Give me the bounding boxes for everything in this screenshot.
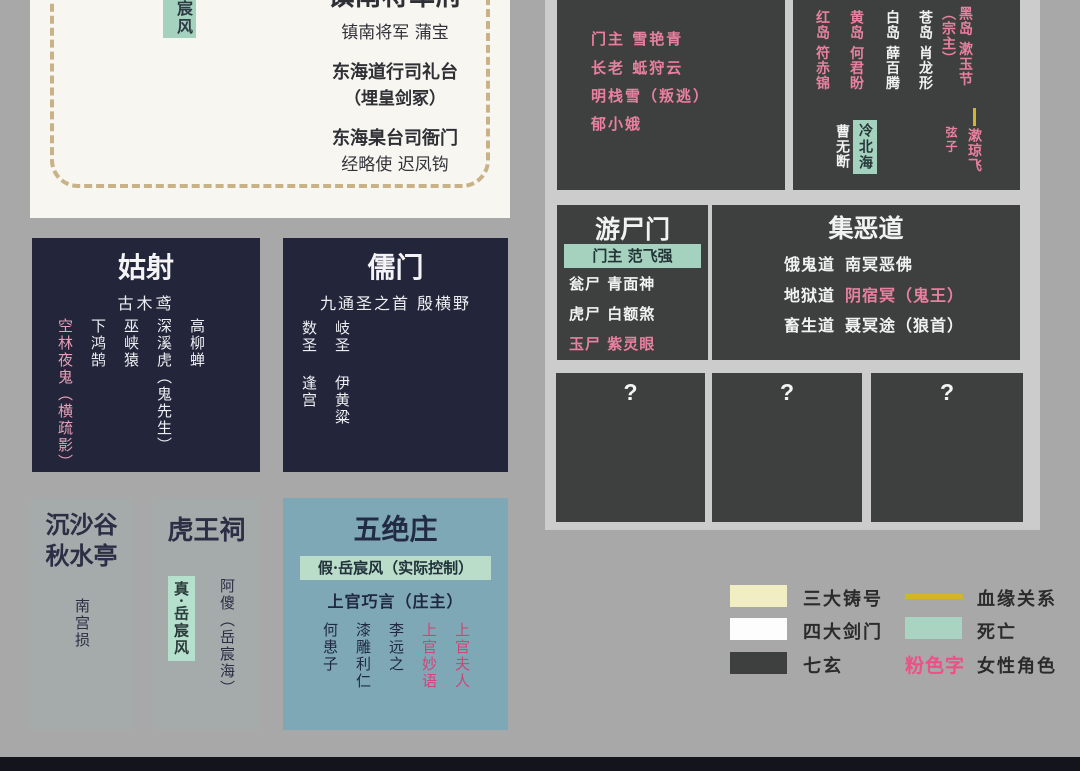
legend-label: 女性角色 (977, 652, 1057, 678)
huwang-card: 虎王祠 真·岳宸风 阿傻（岳宸海） (153, 498, 260, 730)
role-label: 饿鬼道 (784, 255, 835, 274)
wujue-title: 五绝庄 (283, 508, 508, 548)
unknown-card: ? (712, 373, 862, 522)
legend-swatch-dark (730, 652, 787, 674)
chensha-card: 沉沙谷 秋水亭 南宫损 (30, 498, 133, 730)
member-line: 虎尸 白额煞 (569, 303, 655, 324)
seven-xuan-panel: 海沙会 门主 雪艳青 长老 蚳狩云 明栈雪（叛逃） 郁小娥 红岛 符赤锦 黄岛 … (545, 0, 1040, 530)
member-line: 畜生道聂冥途（狼首） (784, 312, 964, 336)
member-name: 空林夜鬼（横疏影） (55, 318, 76, 470)
relation-label: 弦子 (943, 126, 960, 154)
five-islands-card: 红岛 符赤锦 黄岛 何君盼 白岛 薛百腾 苍岛 肖龙形 黑岛 漱玉节（宗主） 漱… (793, 0, 1020, 190)
unknown-card: ? (871, 373, 1023, 522)
member-name: 南宫损 (72, 598, 93, 649)
member-line: 瓮尸 青面神 (569, 273, 655, 294)
member-name: 阴宿冥（鬼王） (845, 286, 964, 305)
role-label: 畜生道 (784, 316, 835, 335)
ritual-office-title: 东海道行司礼台 (270, 58, 520, 84)
member-name: 曹无断 (833, 124, 850, 169)
island-column: 白岛 薛百腾 (883, 10, 900, 91)
member-name: 漆雕利仁 (353, 622, 374, 730)
legend-swatch-cream (730, 585, 787, 607)
haisha-title-clipped: 海沙会 (557, 0, 785, 2)
card-title: 镇南将军府 (270, 0, 520, 12)
legend-label: 四大剑门 (803, 618, 883, 644)
member-name: 伊黄粱 (332, 375, 353, 426)
title-line: 秋水亭 (30, 541, 133, 572)
deceased-tag-yuechenfeng: 岳宸风 (163, 0, 196, 38)
member-columns: 高柳蝉 深溪虎（鬼先生） 巫峡猿 下鸿鹄 空林夜鬼（横疏影） (76, 318, 208, 470)
jiedao-title: 集恶道 (712, 209, 1020, 245)
yamen-sub: 经略使 迟凤钩 (270, 150, 520, 175)
legend-swatch-green (905, 617, 962, 639)
deceased-leader-band: 门主 范飞强 (564, 244, 701, 268)
legend-swatch-white (730, 618, 787, 640)
legend-label: 死亡 (977, 618, 1017, 644)
member-name: 阿傻（岳宸海） (217, 578, 238, 738)
deceased-tag-true-yuechenfeng: 真·岳宸风 (168, 576, 195, 661)
member-line: 郁小娥 (591, 113, 642, 134)
rumen-title: 儒门 (283, 246, 508, 286)
member-name: 巫峡猿 (121, 318, 142, 470)
rumen-card: 儒门 九通圣之首 殷横野 岐圣 伊黄粱 数圣 逢宫 (283, 238, 508, 472)
member-line: 玉尸 紫灵眼 (569, 333, 655, 354)
ritual-office-sub: （埋皇剑冢） (270, 84, 520, 109)
role-label: 数圣 (300, 320, 318, 354)
member-line: 长老 蚳狩云 (591, 57, 683, 78)
role-label: 岐圣 (333, 320, 351, 354)
blood-relation-line (973, 108, 976, 126)
member-line: 地狱道阴宿冥（鬼王） (784, 282, 964, 306)
jiedao-card: 集恶道 饿鬼道南冥恶佛 地狱道阴宿冥（鬼王） 畜生道聂冥途（狼首） (712, 205, 1020, 360)
island-column: 苍岛 肖龙形 (916, 10, 933, 91)
member-column: 数圣 逢宫 (299, 320, 320, 409)
leader-name: 古木鸢 (32, 290, 260, 314)
island-column: 黄岛 何君盼 (847, 10, 864, 91)
general-line: 镇南将军 蒲宝 (270, 18, 520, 43)
chensha-title: 沉沙谷 秋水亭 (30, 510, 133, 572)
leader-line: 九通圣之首 殷横野 (283, 290, 508, 314)
legend-label: 血缘关系 (977, 585, 1057, 611)
member-column: 岐圣 伊黄粱 (332, 320, 353, 426)
gushe-card: 姑射 古木鸢 高柳蝉 深溪虎（鬼先生） 巫峡猿 下鸿鹄 空林夜鬼（横疏影） (32, 238, 260, 472)
member-columns: 上官夫人 上官妙语 李远之 漆雕利仁 何患子 (323, 622, 473, 730)
member-name: 南冥恶佛 (845, 255, 913, 274)
yamen-title: 东海臬台司衙门 (270, 124, 520, 150)
wujue-card: 五绝庄 假·岳宸风（实际控制） 上官巧言（庄主） 上官夫人 上官妙语 李远之 漆… (283, 498, 508, 730)
member-name: 高柳蝉 (187, 318, 208, 470)
deceased-tag-lengbeihai: 冷北海 (853, 120, 877, 174)
legend-label: 七玄 (803, 652, 843, 678)
member-name: 何患子 (320, 622, 341, 730)
youshimen-card: 游尸门 门主 范飞强 瓮尸 青面神 虎尸 白额煞 玉尸 紫灵眼 (557, 205, 708, 360)
descendant-name: 漱琼飞 (965, 128, 982, 173)
member-line: 明栈雪（叛逃） (591, 85, 710, 106)
unknown-card: ? (556, 373, 705, 522)
member-name: 深溪虎（鬼先生） (154, 318, 175, 470)
member-name: 上官夫人 (452, 622, 473, 730)
zhennan-mansion-card: 岳宸风 镇南将军府 镇南将军 蒲宝 东海道行司礼台 （埋皇剑冢） 东海臬台司衙门… (30, 0, 510, 218)
title-line: 沉沙谷 (30, 510, 133, 541)
owner-line: 上官巧言（庄主） (283, 588, 508, 612)
youshimen-title: 游尸门 (557, 210, 708, 246)
bottom-dark-strip (0, 757, 1080, 771)
question-mark: ? (871, 379, 1023, 406)
member-line: 饿鬼道南冥恶佛 (784, 251, 913, 275)
member-name: 聂冥途（狼首） (845, 316, 964, 335)
haisha-card: 海沙会 门主 雪艳青 长老 蚳狩云 明栈雪（叛逃） 郁小娥 (557, 0, 785, 190)
member-line: 门主 雪艳青 (591, 28, 683, 49)
legend-label: 三大铸号 (803, 585, 883, 611)
legend-blood-line (905, 594, 963, 599)
huwang-title: 虎王祠 (153, 510, 260, 547)
island-column: 红岛 符赤锦 (813, 10, 830, 91)
deceased-controller-band: 假·岳宸风（实际控制） (300, 556, 491, 580)
member-name: 上官妙语 (419, 622, 440, 730)
question-mark: ? (556, 379, 705, 406)
member-name: 下鸿鹄 (88, 318, 109, 470)
gushe-title: 姑射 (32, 246, 260, 286)
member-name: 李远之 (386, 622, 407, 730)
island-column-black: 黑岛 漱玉节（宗主） (939, 6, 973, 102)
member-name: 逢宫 (299, 375, 320, 409)
legend-pink-sample: 粉色字 (905, 651, 965, 678)
role-label: 地狱道 (784, 286, 835, 305)
question-mark: ? (712, 379, 862, 406)
